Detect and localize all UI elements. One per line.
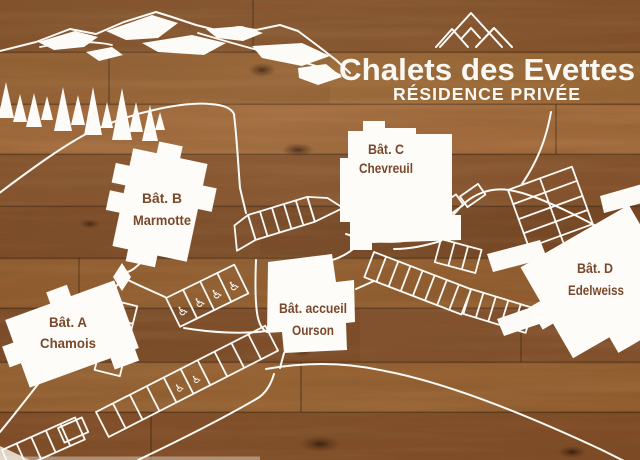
wooden-site-map-sign: Chalets des Evettes RÉSIDENCE PRIVÉE <box>0 0 640 460</box>
building-a-subname: Chamois <box>40 335 96 351</box>
building-b-subname: Marmotte <box>133 212 191 228</box>
building-a-name: Bât. A <box>49 314 87 330</box>
building-d-name: Bât. D <box>577 260 613 276</box>
building-d-subname: Edelweiss <box>568 282 624 298</box>
sign-subtitle: RÉSIDENCE PRIVÉE <box>393 83 581 104</box>
site-map: Chalets des Evettes RÉSIDENCE PRIVÉE <box>0 0 640 460</box>
building-c-name: Bât. C <box>368 141 404 157</box>
building-b-name: Bât. B <box>142 190 182 206</box>
sign-title: Chalets des Evettes <box>339 52 635 87</box>
building-c-subname: Chevreuil <box>359 160 413 176</box>
building-accueil-subname: Ourson <box>292 322 334 338</box>
building-accueil-name: Bât. accueil <box>279 300 347 316</box>
